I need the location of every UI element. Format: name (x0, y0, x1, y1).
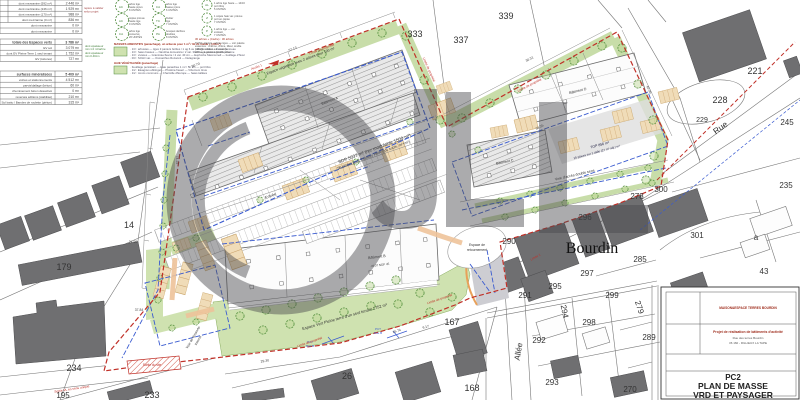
svg-text:298: 298 (582, 318, 596, 327)
svg-text:289: 289 (642, 333, 656, 342)
svg-text:5 409 m²: 5 409 m² (65, 72, 79, 76)
svg-text:339: 339 (498, 11, 513, 21)
svg-text:0 m²: 0 m² (72, 24, 80, 28)
svg-text:min 0.40cm: min 0.40cm (85, 54, 100, 58)
svg-text:dont mezzanine (246 m²): dont mezzanine (246 m²) (19, 7, 52, 11)
svg-text:dont mezzanine (0 m²): dont mezzanine (0 m²) (22, 18, 52, 22)
svg-text:988 m²: 988 m² (68, 13, 79, 17)
svg-text:37.84: 37.84 (135, 308, 144, 312)
svg-text:234: 234 (66, 363, 81, 373)
svg-text:· 0/3 : SOLD var. — Osmanthu: · 0/3 : SOLD var. — Osmanthus Rozannii —… (130, 56, 200, 60)
svg-text:0 m²: 0 m² (72, 29, 80, 33)
svg-text:cheminement béton désactivé: cheminement béton désactivé (12, 89, 52, 93)
svg-text:36 160 - RILLIEUX LA TAPE: 36 160 - RILLIEUX LA TAPE (729, 341, 767, 345)
svg-text:270: 270 (623, 385, 637, 394)
svg-text:297: 297 (580, 269, 594, 278)
svg-text:CA: CA (119, 32, 123, 36)
svg-text:60 m²: 60 m² (70, 84, 80, 88)
svg-text:AL: AL (205, 3, 209, 7)
svg-text:337: 337 (453, 35, 468, 45)
svg-text:4 512 m²: 4 512 m² (66, 78, 80, 82)
svg-text:292: 292 (532, 336, 546, 345)
svg-text:727 m²: 727 m² (68, 57, 79, 61)
svg-text:168: 168 (464, 383, 479, 393)
svg-text:229: 229 (696, 117, 708, 124)
svg-text:0 m²: 0 m² (72, 89, 80, 93)
svg-text:333: 333 (407, 29, 422, 39)
svg-text:1 752 m²: 1 752 m² (66, 52, 80, 56)
svg-text:278: 278 (630, 192, 644, 201)
svg-text:selon projet: selon projet (84, 10, 99, 14)
svg-text:2 446 m²: 2 446 m² (66, 1, 80, 5)
svg-text:24.99: 24.99 (129, 240, 138, 244)
svg-text:43: 43 (760, 267, 769, 276)
svg-text:arrosage goutte à goutte prévu: arrosage goutte à goutte prévu (195, 50, 231, 54)
svg-text:290: 290 (502, 237, 516, 246)
svg-text:167: 167 (444, 317, 459, 327)
svg-text:Sol battu / Bandes de roulette: Sol battu / Bandes de roulette (piéton) (1, 100, 52, 104)
svg-text:parvis/dallage (béton): parvis/dallage (béton) (23, 84, 52, 88)
svg-text:291: 291 (518, 291, 532, 300)
svg-text:dont mezzanine: dont mezzanine (31, 24, 53, 28)
svg-text:dont mezzanine (170 m²): dont mezzanine (170 m²) (19, 13, 52, 17)
svg-text:295: 295 (548, 282, 562, 291)
svg-text:221: 221 (747, 66, 762, 76)
svg-text:26: 26 (342, 371, 352, 381)
svg-text:1 929 m²: 1 929 m² (66, 7, 80, 11)
svg-text:· 1/2 : troncs communs — Cha: · 1/2 : troncs communs — Charmille d'Eur… (130, 71, 208, 75)
svg-text:dont EV Pleine Terre 1 seul te: dont EV Pleine Terre 1 seul tenant (7, 52, 53, 56)
svg-text:dont mezzanine: dont mezzanine (31, 29, 53, 33)
svg-text:reversés éditions (stabilisé): reversés éditions (stabilisé) (16, 95, 52, 99)
svg-text:245: 245 (780, 118, 794, 127)
svg-text:285: 285 (633, 255, 647, 264)
svg-text:voiries et stationnements: voiries et stationnements (19, 78, 53, 82)
svg-text:EV sol: EV sol (43, 46, 52, 50)
svg-text:MAISON&ESPACE TERRES BOURDIN: MAISON&ESPACE TERRES BOURDIN (719, 306, 777, 310)
svg-text:836 m²: 836 m² (68, 18, 79, 22)
svg-text:3 786 m²: 3 786 m² (65, 40, 79, 44)
svg-text:PA: PA (156, 32, 160, 36)
svg-text:3 079 m²: 3 079 m² (66, 46, 80, 50)
svg-text:Bourdin: Bourdin (566, 240, 618, 257)
svg-text:210 m²: 210 m² (68, 95, 79, 99)
svg-text:Projet de réalisation de bâtim: Projet de réalisation de bâtiments d'act… (713, 330, 783, 334)
svg-text:surfaces minéralisées: surfaces minéralisées (17, 72, 53, 76)
svg-text:179: 179 (56, 262, 71, 272)
svg-text:228: 228 (712, 95, 727, 105)
svg-text:293: 293 (545, 378, 559, 387)
svg-text:301: 301 (690, 231, 704, 240)
svg-text:Z: Z (206, 16, 208, 20)
svg-text:VRD ET PAYSAGER: VRD ET PAYSAGER (693, 390, 773, 400)
svg-text:CA: CA (156, 5, 160, 9)
svg-text:315 m²: 315 m² (68, 100, 79, 104)
svg-text:retournement: retournement (467, 248, 487, 252)
svg-text:Rue des terres Bourdin: Rue des terres Bourdin (733, 336, 764, 340)
svg-text:233: 233 (144, 390, 159, 400)
svg-text:Espace de: Espace de (469, 243, 485, 247)
svg-text:14: 14 (124, 220, 134, 230)
svg-text:totale des Espaces verts: totale des Espaces verts (12, 40, 52, 44)
svg-text:30 arbres + (Cèdre) : 30 arbre: 30 arbres + (Cèdre) : 30 arbres (195, 37, 234, 41)
svg-text:300: 300 (654, 185, 668, 194)
svg-text:P: P (206, 29, 208, 33)
svg-text:dont mezzanine (592 m²): dont mezzanine (592 m²) (19, 1, 52, 5)
svg-text:EV (toitures): EV (toitures) (35, 57, 52, 61)
svg-text:299: 299 (605, 291, 619, 300)
svg-text:Sortie du site: Sortie du site (143, 363, 162, 367)
svg-text:235: 235 (779, 181, 793, 190)
svg-text:a: a (754, 233, 759, 242)
svg-text:Rue B: Rue B (374, 331, 382, 335)
